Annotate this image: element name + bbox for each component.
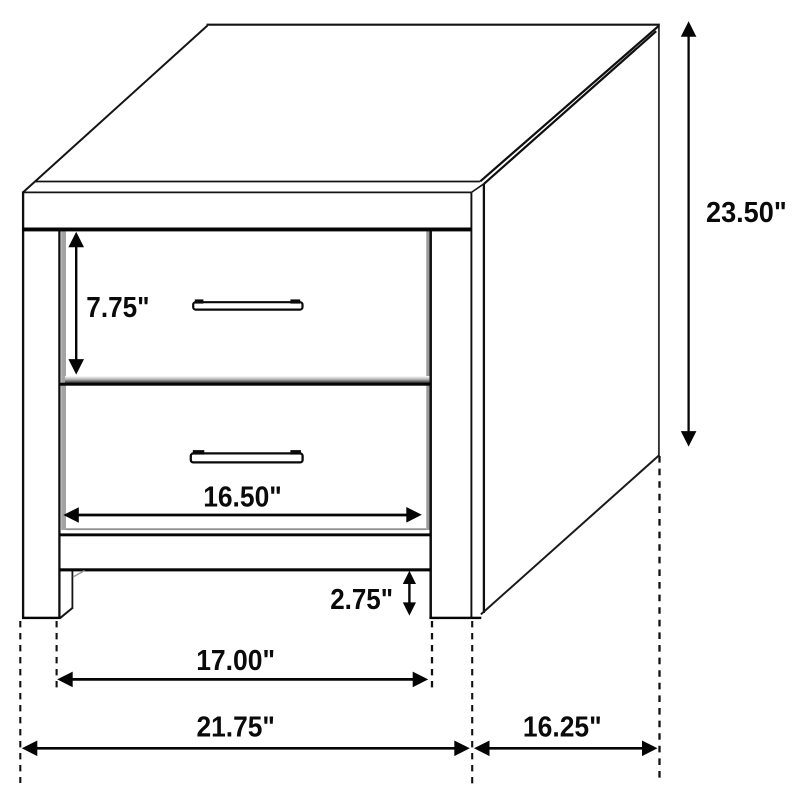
svg-text:2.75": 2.75" [330, 584, 393, 616]
svg-text:16.50": 16.50" [203, 481, 282, 513]
svg-text:17.00": 17.00" [196, 645, 275, 677]
svg-text:7.75": 7.75" [86, 292, 149, 324]
svg-text:16.25": 16.25" [523, 712, 602, 744]
svg-text:23.50": 23.50" [706, 197, 787, 229]
svg-text:21.75": 21.75" [197, 711, 275, 743]
